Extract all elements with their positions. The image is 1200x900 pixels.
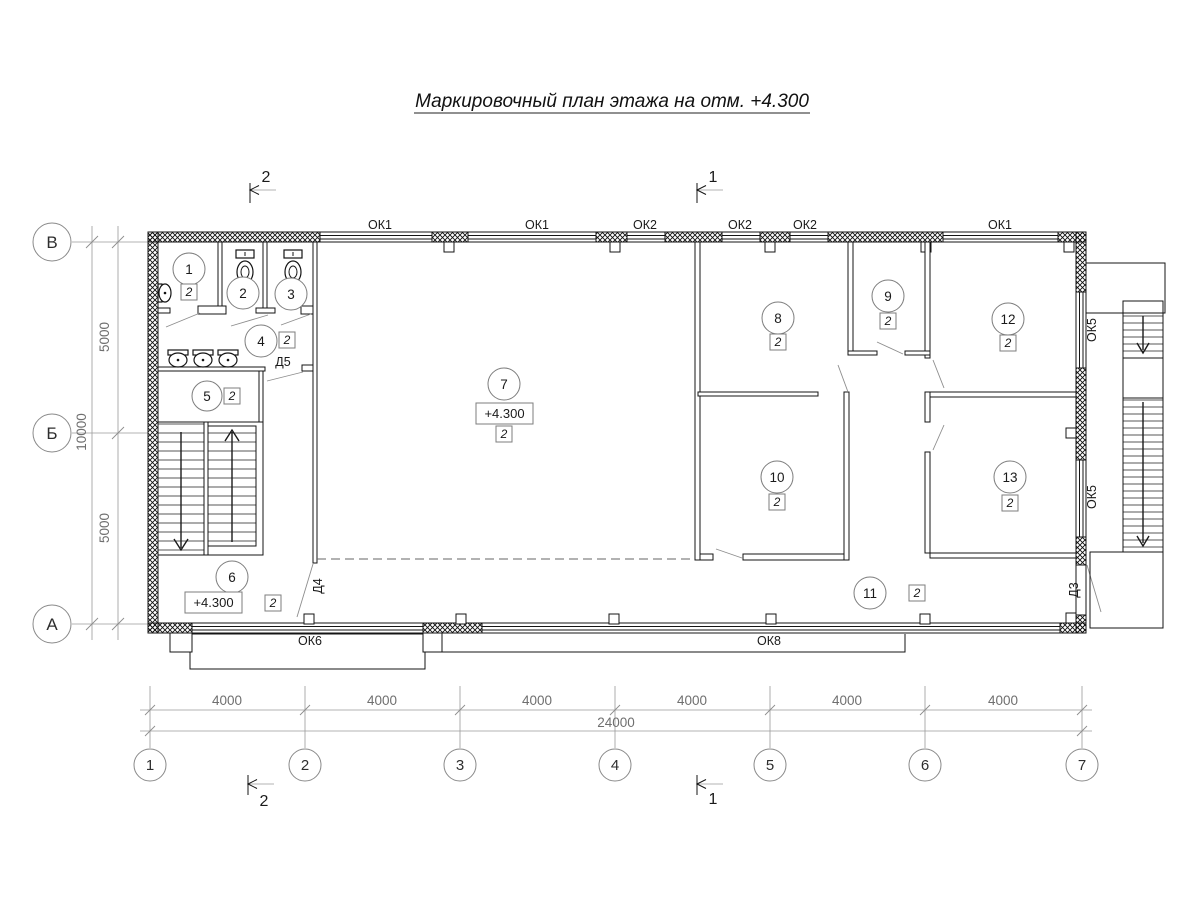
room-number: 12: [1000, 312, 1015, 327]
axis-label-b: Б: [46, 424, 57, 443]
door-label: Д3: [1067, 582, 1081, 597]
floor-plan-drawing: Маркировочный план этажа на отм. +4.300 …: [0, 0, 1200, 900]
canopy-outlines: [170, 633, 905, 669]
dim-left-lower: 5000: [97, 513, 112, 543]
room-number: 10: [769, 470, 784, 485]
dim-bay-5: 4000: [832, 693, 862, 708]
room-number: 1: [185, 262, 193, 277]
svg-text:1: 1: [709, 169, 718, 186]
window-label: ОК8: [757, 634, 781, 648]
room-number: 5: [203, 389, 211, 404]
axis-label-2: 2: [301, 757, 309, 774]
room-number: 4: [257, 334, 265, 349]
room-number: 6: [228, 570, 236, 585]
window-label: ОК1: [368, 218, 392, 232]
dim-bay-2: 4000: [367, 693, 397, 708]
dim-bay-6: 4000: [988, 693, 1018, 708]
window-label: ОК5: [1085, 485, 1099, 509]
window-posts: [304, 242, 1076, 624]
svg-text:2: 2: [262, 169, 271, 186]
room-mark: 2: [1004, 336, 1012, 350]
sink-icon: [193, 350, 213, 367]
section-mark-1-top: 1: [697, 169, 723, 203]
axis-label-3: 3: [456, 757, 464, 774]
dim-left-upper: 5000: [97, 322, 112, 352]
elevation-mark: +4.300: [484, 406, 524, 421]
window-label: ОК2: [793, 218, 817, 232]
section-marks: 2 1 2 1: [248, 169, 723, 810]
axis-label-4: 4: [611, 757, 619, 774]
dim-left-total: 10000: [74, 413, 89, 451]
axis-label-1: 1: [146, 757, 154, 774]
window-label: ОК1: [988, 218, 1012, 232]
room-number: 3: [287, 287, 295, 302]
room-number: 2: [239, 286, 247, 301]
dim-bay-4: 4000: [677, 693, 707, 708]
elevation-mark: +4.300: [193, 595, 233, 610]
door-label: Д5: [275, 355, 290, 369]
floor-plan-canvas: Маркировочный план этажа на отм. +4.300 …: [0, 0, 1200, 900]
room-mark: 2: [185, 285, 193, 299]
room-number: 8: [774, 311, 782, 326]
window-label: ОК2: [728, 218, 752, 232]
page-title: Маркировочный план этажа на отм. +4.300: [415, 91, 809, 112]
sink-icon: [218, 350, 238, 367]
axis-label-5: 5: [766, 757, 774, 774]
opening-labels: ОК1 ОК1 ОК2 ОК2 ОК2 ОК1 ОК5 ОК5 ОК6 ОК8 …: [275, 218, 1099, 648]
section-mark-1-bottom: 1: [697, 775, 723, 808]
room-mark: 2: [884, 314, 892, 328]
bottom-window-glazing: [192, 627, 1060, 631]
urinal-icon: [158, 284, 171, 302]
room-number: 13: [1002, 470, 1017, 485]
dim-bay-1: 4000: [212, 693, 242, 708]
window-label: ОК2: [633, 218, 657, 232]
room-mark: 2: [773, 495, 781, 509]
door-swings: [166, 313, 1101, 617]
dim-bottom-total: 24000: [597, 715, 635, 730]
drawing-title: Маркировочный план этажа на отм. +4.300: [414, 91, 810, 113]
axis-label-6: 6: [921, 757, 929, 774]
section-mark-2-top: 2: [250, 169, 276, 203]
svg-text:2: 2: [260, 793, 269, 810]
room-mark: 2: [500, 427, 508, 441]
room-mark: 2: [1006, 496, 1014, 510]
room-mark: 2: [283, 333, 291, 347]
stairs-right-exterior: [1086, 263, 1165, 628]
axis-label-v: В: [46, 233, 57, 252]
room-mark: 2: [774, 335, 782, 349]
section-mark-2-bottom: 2: [248, 775, 274, 810]
room-mark: 2: [269, 596, 277, 610]
sink-icon: [168, 350, 188, 367]
axis-label-a: А: [46, 615, 58, 634]
room-mark: 2: [228, 389, 236, 403]
axis-label-7: 7: [1078, 757, 1086, 774]
room-number: 7: [500, 377, 508, 392]
room-number: 11: [863, 586, 877, 601]
stairs-left: [158, 422, 263, 555]
room-mark: 2: [913, 586, 921, 600]
svg-text:1: 1: [709, 791, 718, 808]
room-number: 9: [884, 289, 892, 304]
door-label: Д4: [311, 578, 325, 593]
window-label: ОК5: [1085, 318, 1099, 342]
window-label: ОК1: [525, 218, 549, 232]
dim-bay-3: 4000: [522, 693, 552, 708]
window-label: ОК6: [298, 634, 322, 648]
